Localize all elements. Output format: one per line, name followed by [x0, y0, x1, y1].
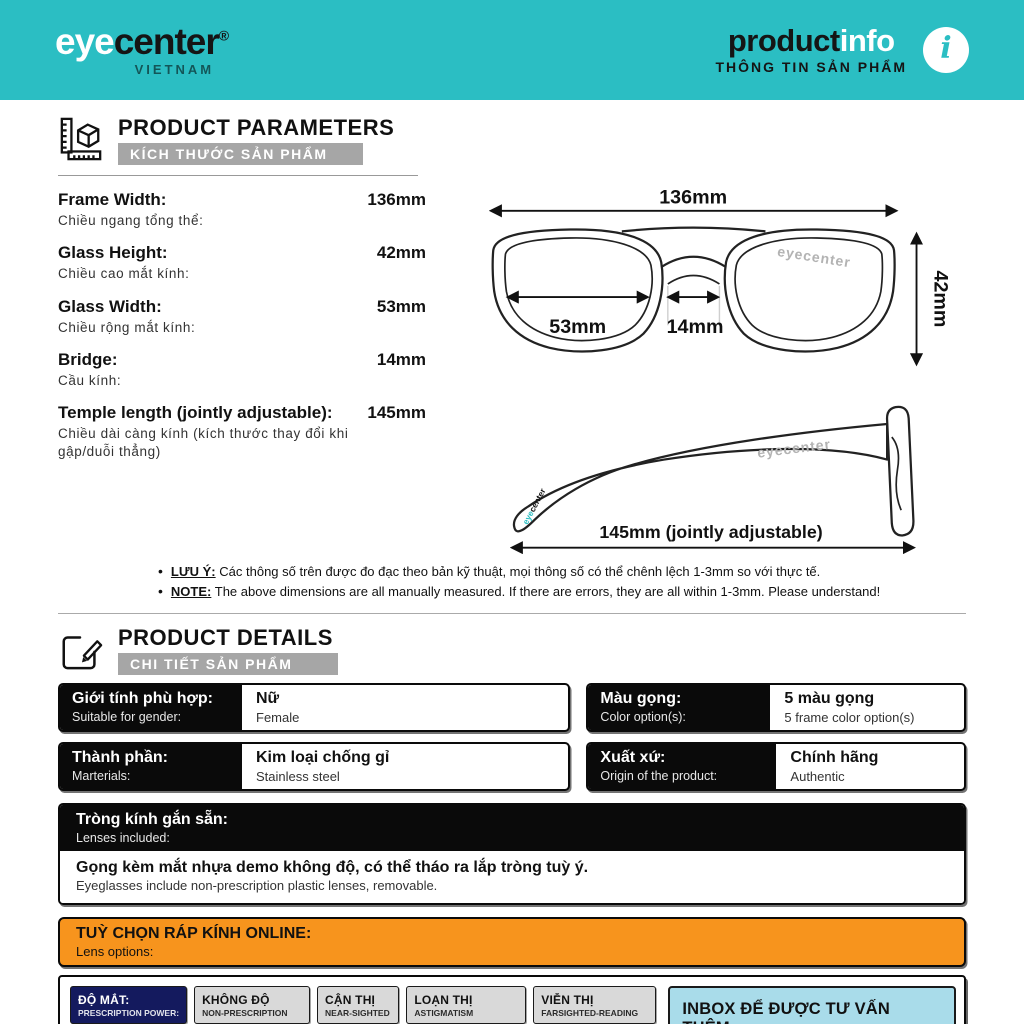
dim-frame-width: 136mm	[659, 186, 727, 208]
dimensions-icon	[58, 116, 104, 162]
param-glass-height: Glass Height: 42mm Chiều cao mắt kính:	[58, 243, 426, 283]
parameters-subtitle: KÍCH THƯỚC SẢN PHẨM	[118, 143, 363, 165]
dim-bridge: 14mm	[667, 316, 724, 338]
param-label: Bridge:	[58, 350, 118, 370]
watermark-side: eyecenter	[756, 436, 831, 461]
note-en: NOTE: The above dimensions are all manua…	[158, 583, 966, 599]
section-divider	[58, 613, 966, 614]
param-bridge: Bridge: 14mm Cầu kính:	[58, 350, 426, 390]
registered-mark: ®	[219, 28, 228, 44]
inbox-title: INBOX ĐỂ ĐƯỢC TƯ VẤN THÊM	[682, 1000, 942, 1024]
detail-value-vn: 5 màu gọng	[784, 690, 914, 708]
lenses-label-vn: Tròng kính gắn sẵn:	[76, 811, 948, 829]
note-vn: LƯU Ý: Các thông số trên được đo đạc the…	[158, 563, 966, 579]
logo-subtitle: VIETNAM	[55, 62, 228, 77]
page-title-block: productinfo THÔNG TIN SẢN PHẨM i	[715, 25, 969, 75]
detail-label-en: Suitable for gender:	[72, 710, 230, 724]
detail-value-en: Female	[256, 710, 299, 725]
chip-near-sighted: CẬN THỊ NEAR-SIGHTED	[317, 986, 399, 1024]
detail-label-vn: Màu gọng:	[600, 690, 758, 708]
chip-non-prescription: KHÔNG ĐỘ NON-PRESCRIPTION	[194, 986, 310, 1024]
lens-options-panel: ĐỘ MẮT: PRESCRIPTION POWER: KHÔNG ĐỘ NON…	[58, 975, 966, 1024]
divider	[58, 175, 418, 176]
page-header: eyecenter® VIETNAM productinfo THÔNG TIN…	[0, 0, 1024, 100]
details-grid: Giới tính phù hợp: Suitable for gender: …	[58, 683, 966, 791]
lenses-value-vn: Gọng kèm mắt nhựa demo không độ, có thể …	[76, 859, 948, 877]
lens-options-grid: ĐỘ MẮT: PRESCRIPTION POWER: KHÔNG ĐỘ NON…	[70, 986, 656, 1024]
watermark-front: eyecenter	[776, 243, 852, 270]
param-label-vn: Chiều rộng mắt kính:	[58, 319, 426, 337]
param-label: Frame Width:	[58, 190, 166, 210]
glasses-side-diagram: eyecenter eyecenter 145mm (jointly adjus…	[456, 379, 966, 557]
lens-options-title-vn: TUỲ CHỌN RÁP KÍNH ONLINE:	[76, 925, 948, 943]
param-frame-width: Frame Width: 136mm Chiều ngang tổng thể:	[58, 190, 426, 230]
param-label-vn: Cầu kính:	[58, 372, 426, 390]
logo-text-eye: eye	[55, 21, 114, 62]
param-value: 136mm	[367, 190, 426, 210]
detail-value-vn: Kim loại chống gỉ	[256, 749, 389, 767]
lens-options-title-en: Lens options:	[76, 944, 948, 959]
detail-value-vn: Nữ	[256, 690, 299, 708]
details-section-header: PRODUCT DETAILS CHI TIẾT SẢN PHẨM	[58, 626, 966, 675]
notes-list: LƯU Ý: Các thông số trên được đo đạc the…	[158, 563, 966, 599]
title-text-info: info	[840, 23, 895, 58]
parameters-list: Frame Width: 136mm Chiều ngang tổng thể:…	[58, 190, 426, 557]
param-glass-width: Glass Width: 53mm Chiều rộng mắt kính:	[58, 297, 426, 337]
chip-astigmatism: LOẠN THỊ ASTIGMATISM	[406, 986, 526, 1024]
detail-label-en: Marterials:	[72, 769, 230, 783]
dim-glass-height: 42mm	[929, 271, 951, 328]
eyecenter-logo: eyecenter® VIETNAM	[55, 23, 228, 77]
detail-label-en: Origin of the product:	[600, 769, 764, 783]
param-value: 14mm	[377, 350, 426, 370]
detail-row-colors: Màu gọng: Color option(s): 5 màu gọng 5 …	[586, 683, 966, 732]
lenses-label-en: Lenses included:	[76, 831, 948, 845]
param-label: Glass Width:	[58, 297, 162, 317]
dim-temple-length: 145mm (jointly adjustable)	[599, 522, 822, 542]
detail-row-materials: Thành phần: Marterials: Kim loại chống g…	[58, 742, 570, 791]
detail-row-gender: Giới tính phù hợp: Suitable for gender: …	[58, 683, 570, 732]
param-label: Glass Height:	[58, 243, 168, 263]
chip-farsighted: VIỄN THỊ FARSIGHTED-READING	[533, 986, 656, 1024]
lenses-included-box: Tròng kính gắn sẵn: Lenses included: Gọn…	[58, 803, 966, 905]
param-label-vn: Chiều cao mắt kính:	[58, 265, 426, 283]
param-temple-length: Temple length (jointly adjustable): 145m…	[58, 403, 426, 461]
glasses-front-diagram: 136mm 42mm 53mm 14mm eyecenter	[456, 192, 966, 375]
detail-label-en: Color option(s):	[600, 710, 758, 724]
param-value: 145mm	[367, 403, 426, 423]
logo-text-center: center	[114, 21, 219, 62]
param-value: 53mm	[377, 297, 426, 317]
detail-value-en: 5 frame color option(s)	[784, 710, 914, 725]
title-text-product: product	[728, 23, 840, 58]
detail-label-vn: Xuất xứ:	[600, 749, 764, 767]
param-label: Temple length (jointly adjustable):	[58, 403, 333, 423]
param-label-vn: Chiều dài càng kính (kích thước thay đổi…	[58, 425, 358, 461]
details-subtitle: CHI TIẾT SẢN PHẨM	[118, 653, 338, 675]
page-title: productinfo	[715, 25, 907, 56]
detail-label-vn: Thành phần:	[72, 749, 230, 767]
parameters-title: PRODUCT PARAMETERS	[118, 116, 394, 140]
dim-glass-width: 53mm	[549, 316, 606, 338]
page-title-subtitle: THÔNG TIN SẢN PHẨM	[715, 59, 907, 75]
lenses-value-en: Eyeglasses include non-prescription plas…	[76, 878, 948, 893]
glasses-diagrams: 136mm 42mm 53mm 14mm eyecenter eyecenter…	[456, 190, 966, 557]
param-label-vn: Chiều ngang tổng thể:	[58, 212, 426, 230]
info-icon: i	[923, 27, 969, 73]
param-value: 42mm	[377, 243, 426, 263]
lens-options-header: TUỲ CHỌN RÁP KÍNH ONLINE: Lens options:	[58, 917, 966, 967]
detail-value-vn: Chính hãng	[790, 749, 878, 767]
detail-row-origin: Xuất xứ: Origin of the product: Chính hã…	[586, 742, 966, 791]
details-title: PRODUCT DETAILS	[118, 626, 338, 650]
detail-label-vn: Giới tính phù hợp:	[72, 690, 230, 708]
edit-icon	[58, 626, 104, 672]
detail-value-en: Stainless steel	[256, 769, 389, 784]
detail-value-en: Authentic	[790, 769, 878, 784]
inbox-cta: INBOX ĐỂ ĐƯỢC TƯ VẤN THÊM Please send me…	[668, 986, 956, 1024]
chip-prescription-power: ĐỘ MẮT: PRESCRIPTION POWER:	[70, 986, 187, 1024]
parameters-section-header: PRODUCT PARAMETERS KÍCH THƯỚC SẢN PHẨM	[58, 116, 966, 165]
